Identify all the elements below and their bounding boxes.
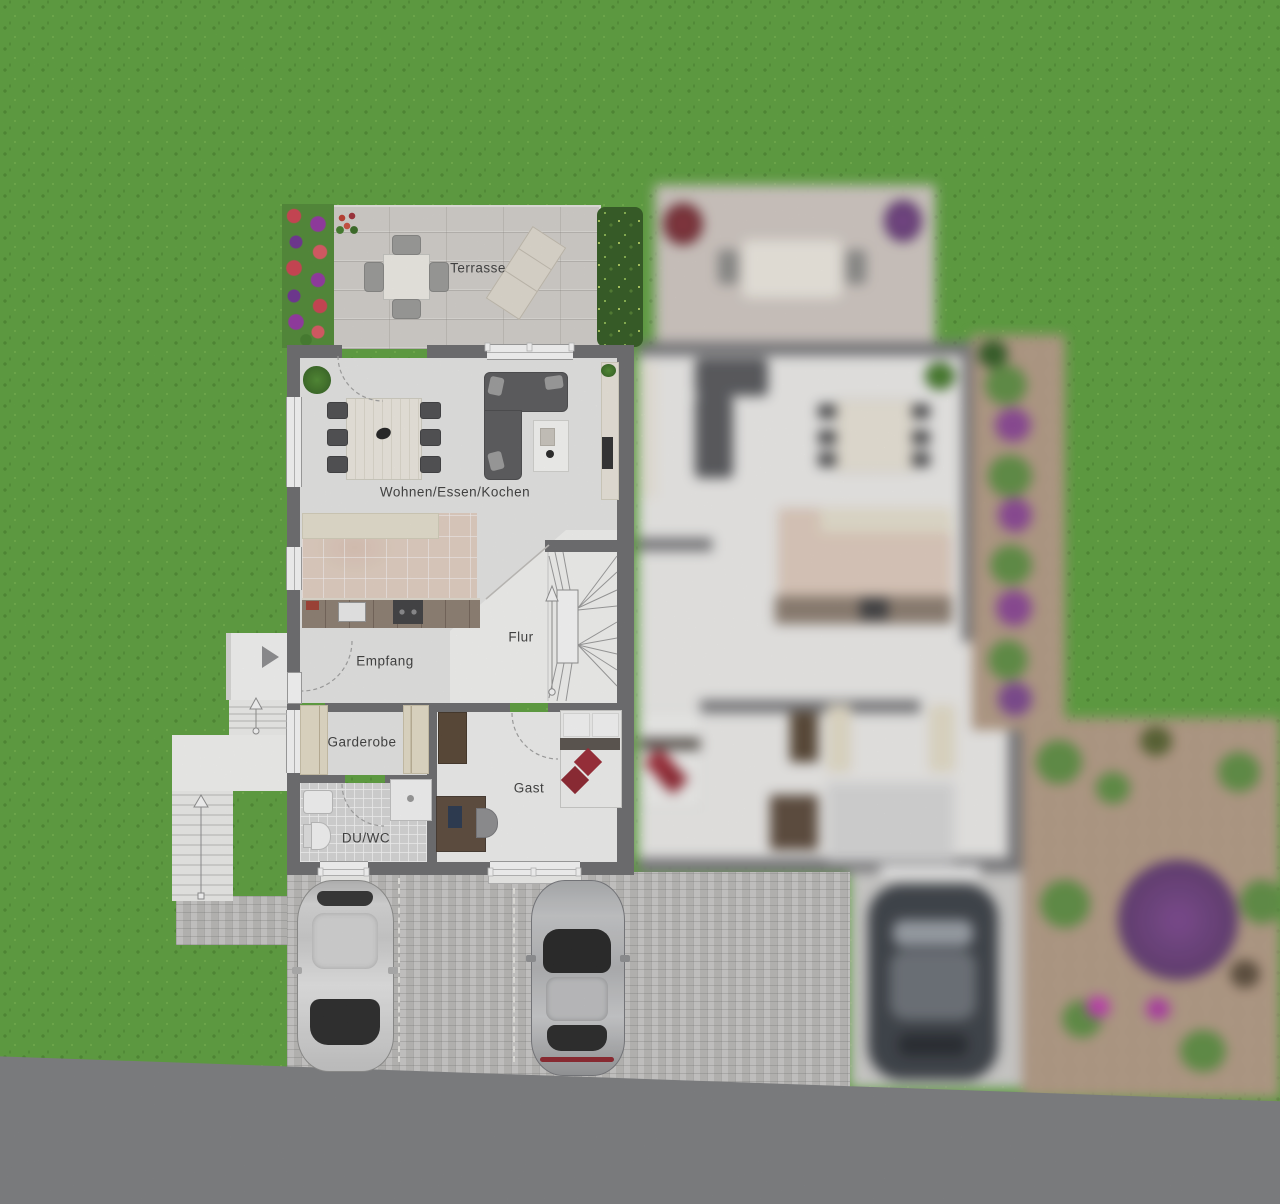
closet <box>300 705 328 775</box>
sofa <box>484 410 522 480</box>
window <box>487 344 573 360</box>
coffee-table-books <box>540 428 555 446</box>
laptop <box>448 806 462 828</box>
car-roof <box>312 913 378 969</box>
car-taillight <box>540 1057 614 1062</box>
car-mirror <box>388 967 398 974</box>
tv <box>602 437 613 469</box>
room-label-empfang: Empfang <box>356 654 414 669</box>
bathroom-sink <box>303 790 333 814</box>
indoor-plant <box>303 366 331 394</box>
entry-door <box>287 672 302 704</box>
window <box>286 397 302 487</box>
car-silver <box>297 880 394 1072</box>
wall <box>287 487 300 547</box>
kitchen-small-appliance <box>306 601 319 610</box>
car-mirror <box>526 955 536 962</box>
dining-chair <box>327 429 348 446</box>
wall <box>287 862 320 875</box>
car-mirror <box>292 967 302 974</box>
bed-headboard-band <box>560 738 620 750</box>
room-label-terrasse: Terrasse <box>450 261 506 276</box>
sideboard-plant <box>601 364 616 377</box>
dining-chair <box>327 456 348 473</box>
dining-chair <box>327 402 348 419</box>
shower-drain <box>407 795 414 802</box>
room-label-duwc: DU/WC <box>342 831 390 846</box>
dining-chair <box>420 402 441 419</box>
room-label-flur: Flur <box>508 630 533 645</box>
wall <box>287 345 300 397</box>
coffee-table-vase <box>546 450 554 458</box>
wall <box>287 773 300 862</box>
floorplan-scene: Terrasse Wohnen/Essen/Kochen Flur Empfan… <box>0 0 1280 1204</box>
dining-chair <box>420 429 441 446</box>
sofa-pillow <box>544 375 564 390</box>
car-rear-window <box>317 891 373 906</box>
car-rear-window <box>547 1025 607 1051</box>
kitchen-counter <box>302 598 480 628</box>
guest-wardrobe <box>438 712 467 764</box>
window <box>286 547 302 590</box>
room-label-wohnen: Wohnen/Essen/Kochen <box>380 485 530 500</box>
house-left-unit <box>0 0 1280 1204</box>
closet <box>403 705 429 774</box>
room-label-garderobe: Garderobe <box>327 735 396 750</box>
car-gray <box>531 880 625 1076</box>
room-label-gast: Gast <box>514 781 545 796</box>
kitchen-stove <box>393 600 423 624</box>
car-windshield <box>543 929 611 973</box>
car-windshield <box>310 999 380 1045</box>
car-roof <box>546 977 608 1021</box>
wall <box>300 775 345 783</box>
bed-pillow <box>563 713 590 737</box>
dining-chair <box>420 456 441 473</box>
wall <box>368 862 490 875</box>
bed-pillow <box>592 713 619 737</box>
kitchen-sideboard <box>302 513 439 539</box>
car-mirror <box>620 955 630 962</box>
wall <box>287 590 300 672</box>
kitchen-sink <box>338 602 366 622</box>
tv-sideboard <box>601 362 619 500</box>
wall <box>580 862 634 875</box>
wall <box>427 345 487 358</box>
stair-wall <box>545 540 617 552</box>
